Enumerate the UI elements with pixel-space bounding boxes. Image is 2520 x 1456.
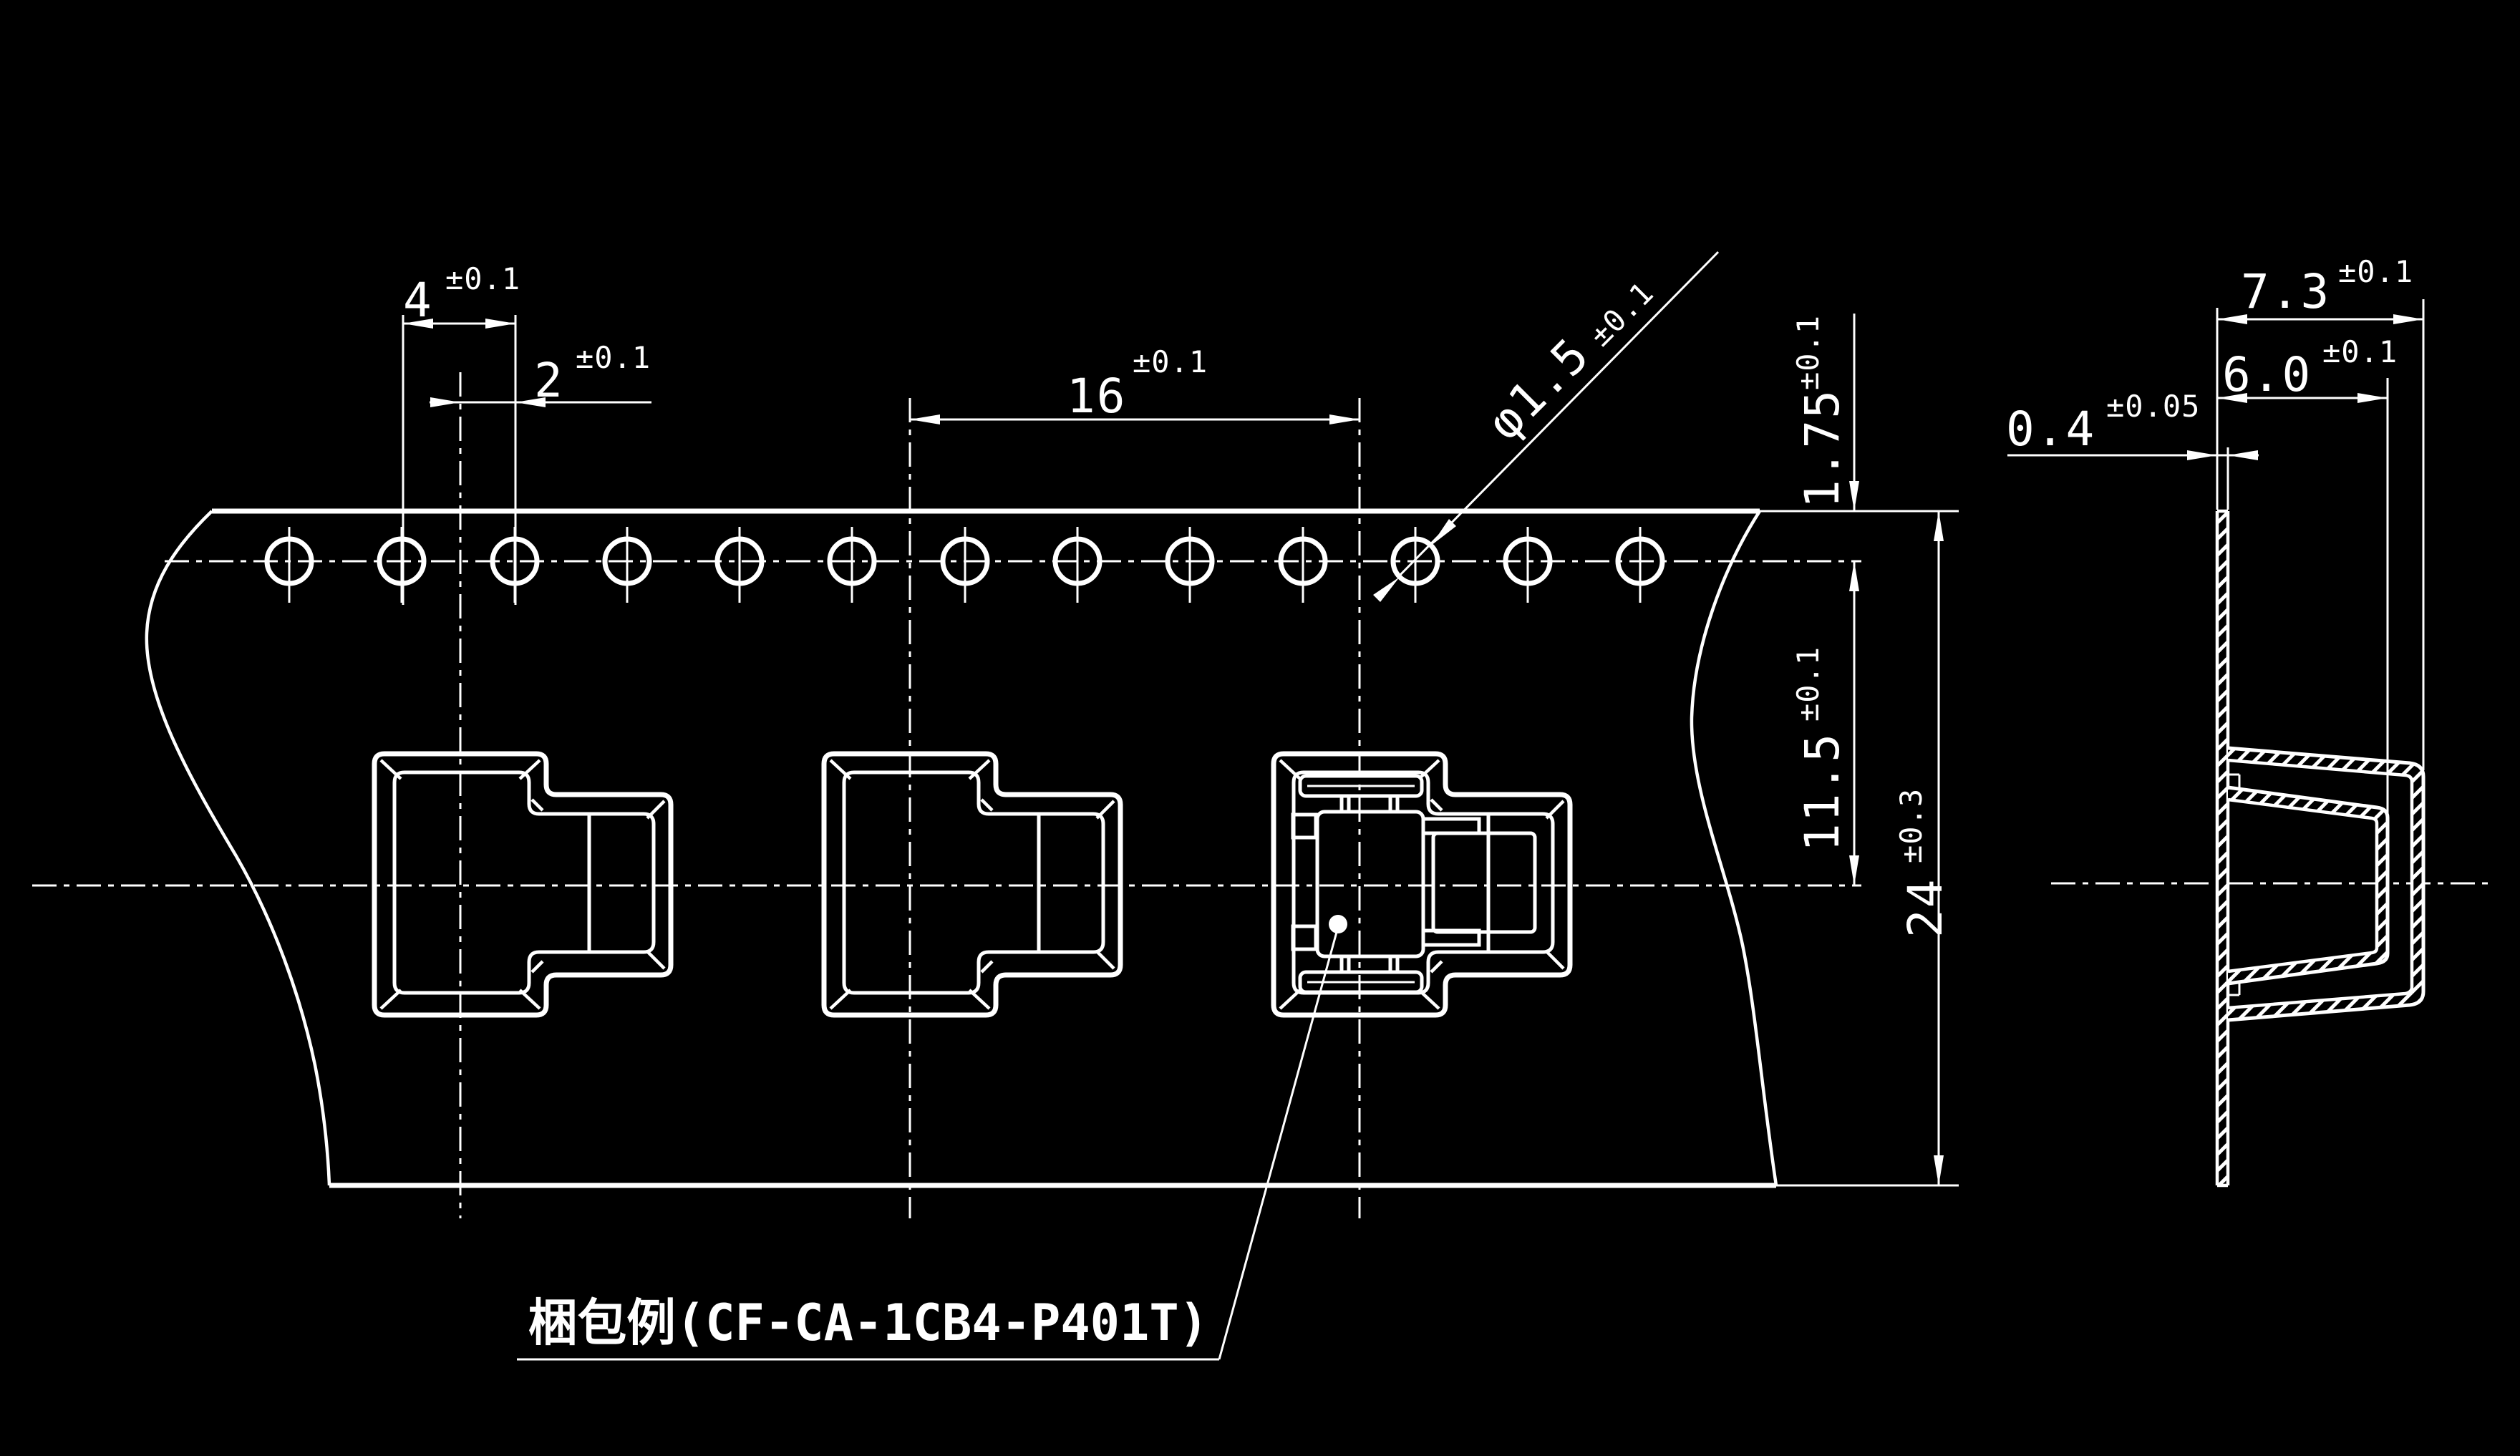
dim-tape-width-value: 24 [1898,878,1953,938]
drawing-canvas: 4 ±0.1 2 ±0.1 16 ±0.1 φ1.5 ±0.1 1.75 ±0.… [0,0,2520,1456]
technical-drawing: 4 ±0.1 2 ±0.1 16 ±0.1 φ1.5 ±0.1 1.75 ±0.… [0,0,2520,1456]
dim-thickness-tolerance: ±0.05 [2106,389,2200,424]
dim-depth-inner-tolerance: ±0.1 [2322,334,2398,369]
dim-hole-pitch-tolerance: ±0.1 [445,261,520,296]
dim-pocket-pitch-value: 16 [1067,369,1126,424]
dim-hole-pitch-value: 4 [403,273,433,328]
dim-depth-outer-value: 7.3 [2241,264,2330,319]
dim-hole-to-pocket-center-tolerance: ±0.1 [1790,646,1826,722]
background [0,0,2520,1456]
packaging-example-label: 梱包例(CF-CA-1CB4-P401T) [528,1294,1208,1352]
dim-thickness-value: 0.4 [2006,402,2095,457]
dim-depth-inner-value: 6.0 [2222,347,2312,402]
dim-edge-to-hole-tolerance: ±0.1 [1790,315,1826,390]
dim-depth-outer-tolerance: ±0.1 [2338,254,2413,289]
dim-offset-value: 2 [534,353,564,408]
dim-edge-to-hole-value: 1.75 [1795,389,1850,508]
dim-pocket-pitch-tolerance: ±0.1 [1133,344,1208,379]
dim-hole-to-pocket-center-value: 11.5 [1795,732,1850,852]
dim-tape-width-tolerance: ±0.3 [1894,788,1929,863]
dim-offset-tolerance: ±0.1 [576,340,651,375]
